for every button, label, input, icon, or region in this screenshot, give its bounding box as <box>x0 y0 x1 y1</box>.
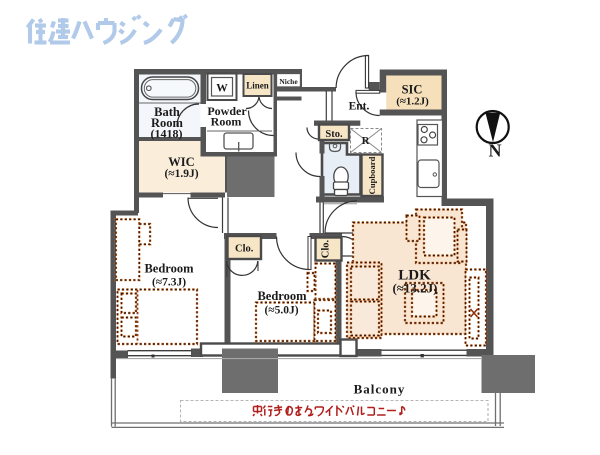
svg-text:(≈1.9J): (≈1.9J) <box>164 168 198 180</box>
svg-text:(≈13.2J): (≈13.2J) <box>392 281 437 296</box>
svg-text:Sto.: Sto. <box>325 129 343 140</box>
svg-text:Clo.: Clo. <box>235 244 254 255</box>
svg-text:SIC: SIC <box>402 83 423 97</box>
svg-text:W: W <box>216 83 228 95</box>
svg-text:(1418): (1418) <box>151 127 183 141</box>
svg-text:(≈1.2J): (≈1.2J) <box>396 96 429 108</box>
svg-text:WIC: WIC <box>168 155 194 169</box>
svg-text:N: N <box>489 141 502 161</box>
svg-text:(≈5.0J): (≈5.0J) <box>264 305 298 317</box>
svg-text:Bedroom: Bedroom <box>257 289 307 303</box>
svg-text:Balcony: Balcony <box>354 382 406 397</box>
svg-text:Niche: Niche <box>279 77 298 86</box>
svg-text:Room: Room <box>211 115 242 129</box>
svg-text:Ent.: Ent. <box>349 101 370 113</box>
svg-text:R: R <box>362 136 370 147</box>
svg-text:Clo.: Clo. <box>321 239 332 258</box>
svg-text:(≈7.3J): (≈7.3J) <box>152 277 186 289</box>
svg-text:Linen: Linen <box>246 81 269 91</box>
svg-text:Cupboard: Cupboard <box>367 156 377 194</box>
svg-text:Bedroom: Bedroom <box>144 262 194 276</box>
